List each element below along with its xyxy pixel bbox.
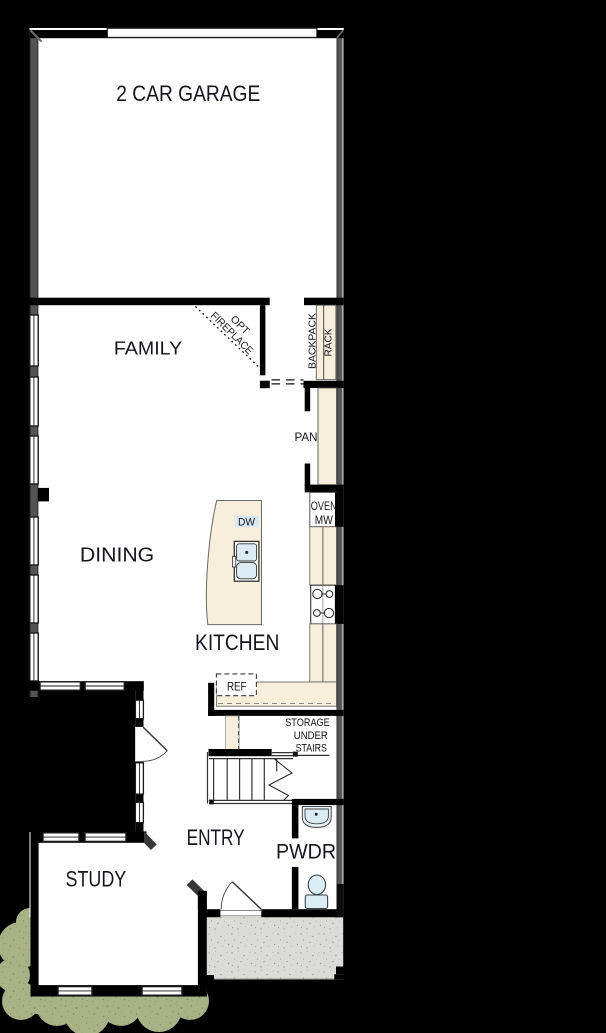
svg-text:DINING: DINING	[80, 544, 154, 567]
svg-text:PAN: PAN	[295, 432, 318, 444]
svg-text:RACK: RACK	[323, 329, 335, 357]
svg-text:FAMILY: FAMILY	[114, 338, 182, 359]
svg-text:STORAGE: STORAGE	[285, 717, 330, 729]
svg-text:2 CAR GARAGE: 2 CAR GARAGE	[116, 81, 260, 106]
svg-text:KITCHEN: KITCHEN	[195, 630, 279, 655]
svg-text:UNDER: UNDER	[294, 730, 328, 742]
svg-text:BACKPACK: BACKPACK	[307, 313, 319, 369]
svg-text:OVEN: OVEN	[311, 501, 337, 513]
svg-text:STAIRS: STAIRS	[296, 743, 327, 755]
svg-text:MW: MW	[315, 515, 333, 527]
svg-text:STUDY: STUDY	[66, 866, 127, 891]
svg-text:PWDR: PWDR	[276, 839, 336, 863]
svg-text:REF: REF	[227, 682, 247, 694]
svg-text:ENTRY: ENTRY	[187, 825, 245, 850]
svg-text:DW: DW	[238, 516, 256, 528]
